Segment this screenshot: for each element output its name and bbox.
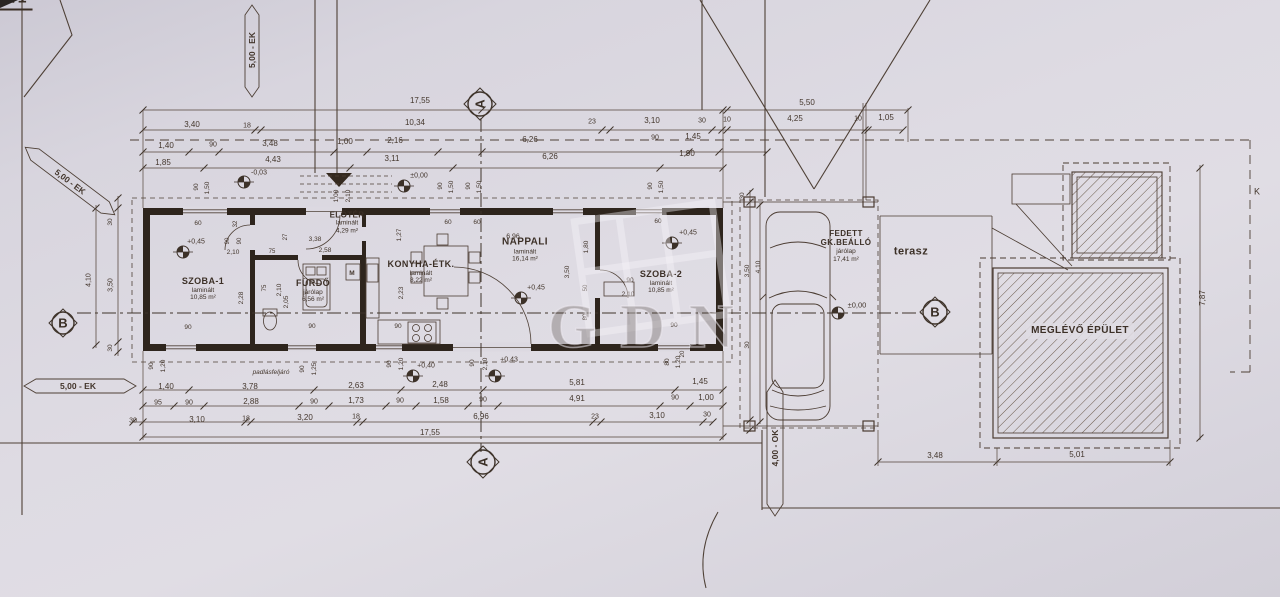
dimension-label-31: 90 bbox=[438, 182, 445, 189]
dimension-label-39: 90 bbox=[225, 238, 231, 245]
dimension-label-9: 4,25 bbox=[787, 115, 803, 123]
dimension-label-87: +0,40 bbox=[417, 363, 435, 370]
dimension-label-108: 90 bbox=[671, 395, 679, 402]
dimension-label-117: 3,10 bbox=[649, 412, 665, 420]
dimension-label-22: 3,11 bbox=[385, 155, 400, 163]
dimension-label-78: 3,50 bbox=[108, 278, 115, 292]
dimension-label-118: 30 bbox=[703, 412, 711, 419]
dimension-label-49: 2,05 bbox=[284, 296, 291, 309]
dimension-label-98: 1,45 bbox=[692, 378, 708, 386]
dimension-label-77: 30 bbox=[108, 218, 115, 225]
dimension-label-126: 5,00 - EK bbox=[60, 382, 96, 391]
dimension-label-73: 3,50 bbox=[745, 265, 752, 278]
dimension-label-116: 23 bbox=[591, 414, 599, 421]
dimension-label-123: K bbox=[1254, 188, 1260, 197]
dimension-label-43: 3,38 bbox=[309, 237, 322, 244]
dimension-label-119: 17,55 bbox=[420, 429, 440, 437]
dimension-label-26: ±0,00 bbox=[410, 173, 427, 180]
existing-building bbox=[980, 163, 1180, 448]
dimension-label-99: 95 bbox=[154, 400, 162, 407]
dimension-label-75: 30 bbox=[745, 341, 752, 348]
dimension-label-36: 1,50 bbox=[659, 181, 666, 194]
section-marker-a-0: A bbox=[473, 99, 488, 108]
dimension-label-121: 5,01 bbox=[1069, 451, 1085, 459]
dimension-label-51: 90 bbox=[308, 324, 315, 331]
dimension-label-122: 7,87 bbox=[1199, 290, 1207, 306]
dimension-label-28: 1,50 bbox=[205, 182, 212, 195]
room-label-konyha-etkezo: KONYHA-ÉTK.laminált8,22 m² bbox=[388, 259, 455, 285]
dimension-label-14: 3,48 bbox=[262, 140, 278, 148]
dimension-label-70: +0,45 bbox=[679, 230, 697, 237]
dimension-label-40: 90 bbox=[237, 238, 243, 245]
dimension-label-8: 10 bbox=[723, 117, 731, 124]
dimension-label-65: 80 bbox=[583, 314, 589, 321]
dimension-label-71: ±0,00 bbox=[848, 301, 867, 309]
room-label-meglevo-epulet: MEGLÉVŐ ÉPÜLET bbox=[1026, 323, 1134, 339]
dimension-label-58: 90 bbox=[394, 324, 401, 331]
dimension-label-16: 2,16 bbox=[387, 137, 403, 145]
dimension-label-88: 90 bbox=[470, 359, 477, 366]
floor-plan-canvas: 4530/1 17,555,503,401810,34233,1030104,2… bbox=[0, 0, 1280, 597]
dimension-label-35: 90 bbox=[648, 182, 655, 189]
dimension-label-124: 5,00 - EK bbox=[248, 32, 257, 68]
room-label-szoba-1: SZOBA-1laminált10,85 m² bbox=[182, 276, 224, 302]
dimension-label-20: 1,85 bbox=[155, 159, 171, 167]
dimension-label-63: 50 bbox=[583, 285, 589, 292]
dimension-label-4: 10,34 bbox=[405, 119, 425, 127]
dimension-label-55: 1,27 bbox=[397, 229, 404, 242]
dimension-label-112: 18 bbox=[242, 416, 250, 423]
dimension-label-1: 5,50 bbox=[799, 99, 815, 107]
dimension-label-11: 1,05 bbox=[878, 114, 894, 122]
room-label-szoba-2: SZOBA-2laminált10,85 m² bbox=[640, 269, 682, 295]
dimension-label-33: 90 bbox=[466, 182, 473, 189]
dimension-label-10: 10 bbox=[854, 116, 862, 123]
section-marker-b-2: B bbox=[58, 316, 67, 331]
section-marker-b-3: B bbox=[930, 305, 939, 320]
dimension-label-6: 3,10 bbox=[644, 117, 660, 125]
dimension-label-91: 80 bbox=[665, 358, 672, 365]
dimension-label-80: 90 bbox=[149, 362, 156, 369]
dimension-label-30: 2,10 bbox=[346, 190, 353, 203]
dimension-label-113: 3,20 bbox=[297, 414, 313, 422]
dimension-label-100: 90 bbox=[185, 400, 193, 407]
room-label-terasz: terasz bbox=[894, 246, 928, 259]
room-label-eloter: ELŐTÉRlaminált4,29 m² bbox=[330, 211, 365, 236]
dimension-label-52: M bbox=[349, 271, 354, 278]
dimension-label-46: 2,28 bbox=[239, 292, 246, 305]
dimension-label-29: 1,00 bbox=[334, 190, 341, 203]
dimension-label-19: 1,45 bbox=[685, 133, 701, 141]
dimension-label-32: 1,50 bbox=[449, 181, 456, 194]
dimension-label-114: 18 bbox=[352, 414, 360, 421]
dimension-label-111: 3,10 bbox=[189, 416, 205, 424]
dimension-label-62: 90 bbox=[626, 278, 633, 285]
dimension-label-7: 30 bbox=[698, 118, 706, 125]
dimension-label-17: 6,26 bbox=[522, 136, 538, 144]
dimension-label-53: 60 bbox=[444, 220, 451, 227]
dimension-label-44: 75 bbox=[269, 249, 276, 255]
dimension-label-82: padlásfeljáró bbox=[253, 370, 290, 377]
dimension-label-24: 1,90 bbox=[679, 150, 695, 158]
dimension-label-15: 1,00 bbox=[337, 138, 353, 146]
room-label-fedett-gk-beallo: FEDETT GK.BEÁLLÓjárólap17,41 m² bbox=[820, 229, 872, 263]
dimension-label-109: 1,00 bbox=[698, 394, 714, 402]
dimension-label-79: 30 bbox=[108, 344, 115, 351]
dimension-label-89: 2,10 bbox=[483, 358, 490, 371]
dimension-label-72: 30 bbox=[740, 192, 747, 199]
dimension-label-34: 1,50 bbox=[477, 181, 484, 194]
dimension-label-13: 90 bbox=[209, 142, 217, 149]
dimension-label-107: 4,91 bbox=[569, 395, 585, 403]
dimension-label-85: 90 bbox=[387, 360, 394, 367]
dimension-label-2: 3,40 bbox=[184, 121, 200, 129]
dimension-label-68: +0,45 bbox=[187, 239, 205, 246]
dimension-label-54: 60 bbox=[473, 220, 480, 227]
dimension-label-110: 30 bbox=[129, 418, 137, 425]
dimension-label-106: 90 bbox=[479, 397, 487, 404]
dimension-label-76: 4,10 bbox=[86, 273, 93, 287]
dimension-label-102: 90 bbox=[310, 399, 318, 406]
dimension-label-50: 90 bbox=[184, 325, 191, 332]
dimension-label-61: 60 bbox=[654, 219, 661, 226]
dimension-label-27: 90 bbox=[194, 183, 201, 190]
dimension-label-92: 1,20 bbox=[676, 356, 683, 369]
dimension-label-96: 2,48 bbox=[432, 381, 448, 389]
dimension-label-127: 4,00 - OK bbox=[771, 430, 780, 467]
dimension-label-86: 1,20 bbox=[399, 358, 406, 371]
dimension-label-64: 2,10 bbox=[622, 292, 635, 299]
dimension-label-42: 27 bbox=[283, 234, 289, 241]
dimension-label-81: 1,20 bbox=[161, 360, 168, 373]
dimension-label-21: 4,43 bbox=[265, 156, 281, 164]
dimension-label-5: 23 bbox=[588, 119, 596, 126]
dimension-label-104: 90 bbox=[396, 398, 404, 405]
dimension-label-94: 3,78 bbox=[242, 383, 258, 391]
dimension-label-41: 2,10 bbox=[227, 250, 240, 257]
dimension-label-12: 1,40 bbox=[158, 142, 174, 150]
dimension-label-47: 75 bbox=[262, 285, 268, 292]
dimension-label-115: 6,96 bbox=[473, 413, 489, 421]
section-marker-a-1: A bbox=[476, 457, 491, 466]
dimension-label-57: 2,23 bbox=[399, 287, 406, 300]
room-label-nappali: NAPPALIlaminált16,14 m² bbox=[502, 236, 548, 263]
dimension-label-38: 32 bbox=[233, 221, 239, 228]
dimension-label-37: 60 bbox=[194, 221, 201, 228]
dimension-label-23: 6,26 bbox=[542, 153, 558, 161]
dimension-label-3: 18 bbox=[243, 123, 251, 130]
dimension-label-69: +0,45 bbox=[527, 285, 545, 292]
dimension-label-18: 90 bbox=[651, 135, 659, 142]
dimension-label-120: 3,48 bbox=[927, 452, 943, 460]
dimension-label-83: 90 bbox=[300, 365, 307, 372]
dimension-label-93: 1,40 bbox=[158, 383, 174, 391]
dimension-label-97: 5,81 bbox=[569, 379, 585, 387]
dimension-label-45: 2,58 bbox=[319, 248, 332, 255]
dimension-label-0: 17,55 bbox=[410, 97, 430, 105]
dimension-label-95: 2,63 bbox=[348, 382, 364, 390]
dimension-label-59: 3,50 bbox=[565, 266, 572, 279]
dimension-label-74: 4,10 bbox=[756, 261, 763, 274]
room-label-furdo: FÜRDŐjárólap6,56 m² bbox=[296, 278, 330, 304]
dimension-label-101: 2,88 bbox=[243, 398, 259, 406]
dimension-label-84: 1,25 bbox=[312, 363, 319, 376]
dimension-label-105: 1,58 bbox=[433, 397, 449, 405]
dimension-label-66: 90 bbox=[670, 323, 677, 330]
dimension-label-60: 1,80 bbox=[584, 241, 591, 254]
dimension-label-25: -0,03 bbox=[251, 170, 267, 177]
dimension-label-90: +0,43 bbox=[500, 357, 518, 364]
dimension-label-103: 1,73 bbox=[348, 397, 364, 405]
